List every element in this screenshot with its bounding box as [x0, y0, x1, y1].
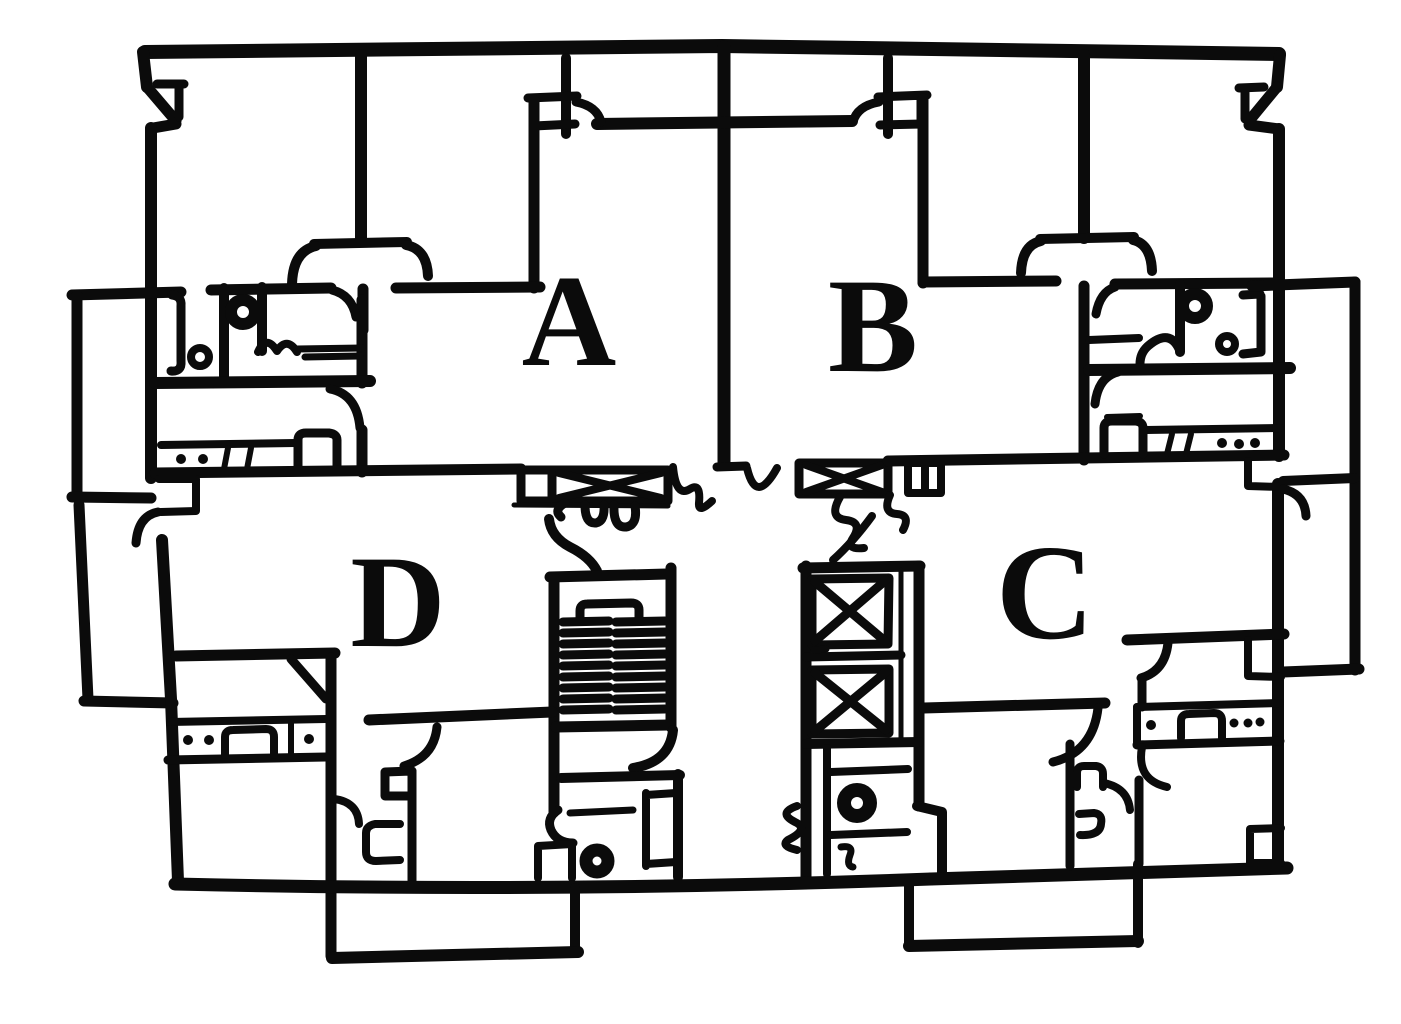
svg-text:D: D [350, 528, 445, 675]
svg-text:C: C [996, 518, 1094, 668]
svg-text:B: B [828, 252, 918, 401]
